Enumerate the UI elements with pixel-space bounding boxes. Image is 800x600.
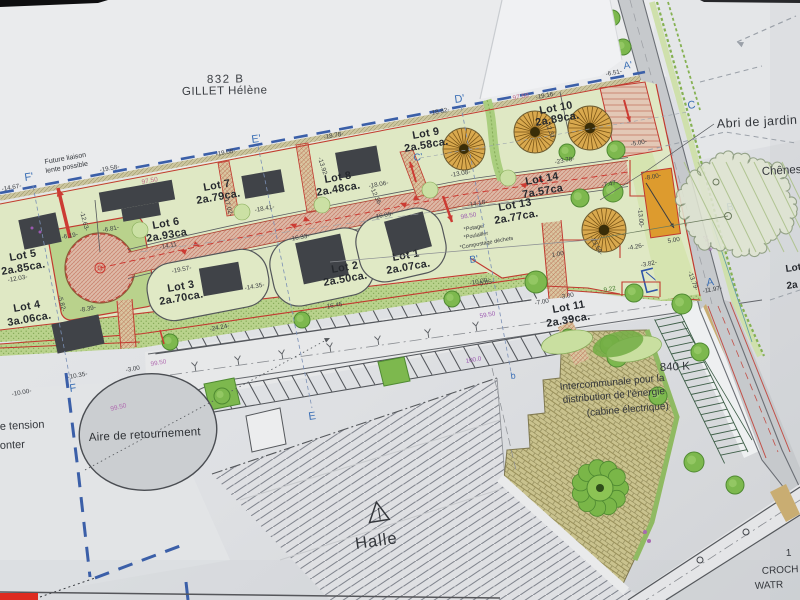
svg-text:onter: onter [0,439,26,452]
svg-text:GILLET Hélène: GILLET Hélène [182,85,268,98]
svg-text:840 K: 840 K [660,360,691,374]
svg-text:2a: 2a [786,279,799,292]
svg-text:D': D' [454,93,466,106]
svg-text:B': B' [469,254,479,266]
svg-text:A': A' [623,60,633,72]
svg-text:e tension: e tension [0,419,45,433]
svg-text:1: 1 [786,548,793,559]
svg-text:WATR: WATR [755,580,784,592]
svg-text:E': E' [251,133,262,146]
svg-text:F': F' [24,171,34,184]
svg-text:Lot: Lot [785,262,800,275]
svg-text:Chênes: Chênes [762,164,800,178]
svg-text:CROCH: CROCH [762,564,799,577]
svg-text:C': C' [413,152,424,164]
